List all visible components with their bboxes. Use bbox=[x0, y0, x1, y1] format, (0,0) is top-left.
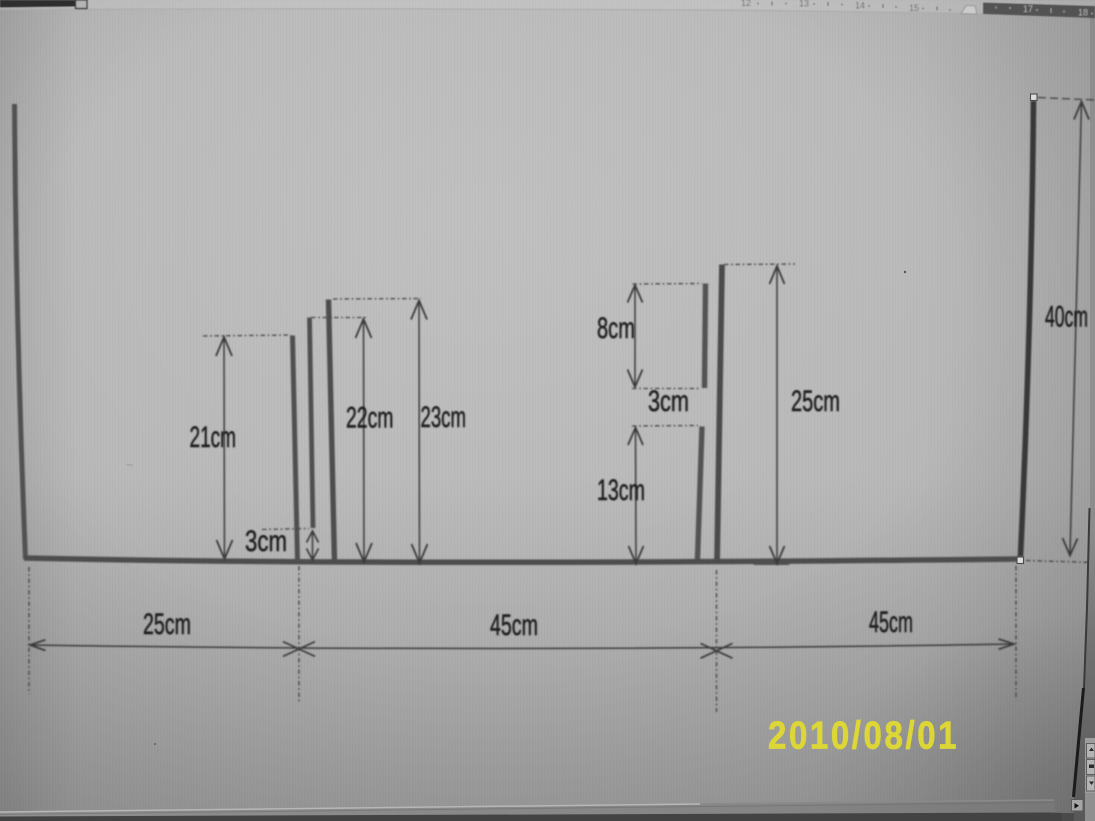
svg-text:8cm: 8cm bbox=[597, 312, 635, 345]
svg-text:22cm: 22cm bbox=[346, 401, 393, 434]
svg-text:2010/08/01: 2010/08/01 bbox=[768, 713, 959, 757]
svg-text:17: 17 bbox=[1023, 4, 1033, 14]
svg-text:18: 18 bbox=[1078, 8, 1088, 18]
svg-text:3cm: 3cm bbox=[245, 524, 287, 558]
svg-text:12: 12 bbox=[741, 0, 751, 8]
svg-text:3cm: 3cm bbox=[648, 383, 689, 417]
svg-text:13: 13 bbox=[799, 0, 809, 9]
svg-text:45cm: 45cm bbox=[490, 609, 538, 642]
svg-text:45cm: 45cm bbox=[869, 607, 913, 640]
svg-text:23cm: 23cm bbox=[421, 401, 466, 435]
svg-text:15: 15 bbox=[909, 3, 919, 13]
svg-text:13cm: 13cm bbox=[597, 474, 645, 507]
svg-text:21cm: 21cm bbox=[190, 421, 236, 454]
svg-text:40cm: 40cm bbox=[1045, 301, 1088, 334]
svg-text:14: 14 bbox=[855, 1, 865, 11]
svg-text:25cm: 25cm bbox=[143, 608, 191, 641]
svg-text:25cm: 25cm bbox=[791, 385, 840, 418]
